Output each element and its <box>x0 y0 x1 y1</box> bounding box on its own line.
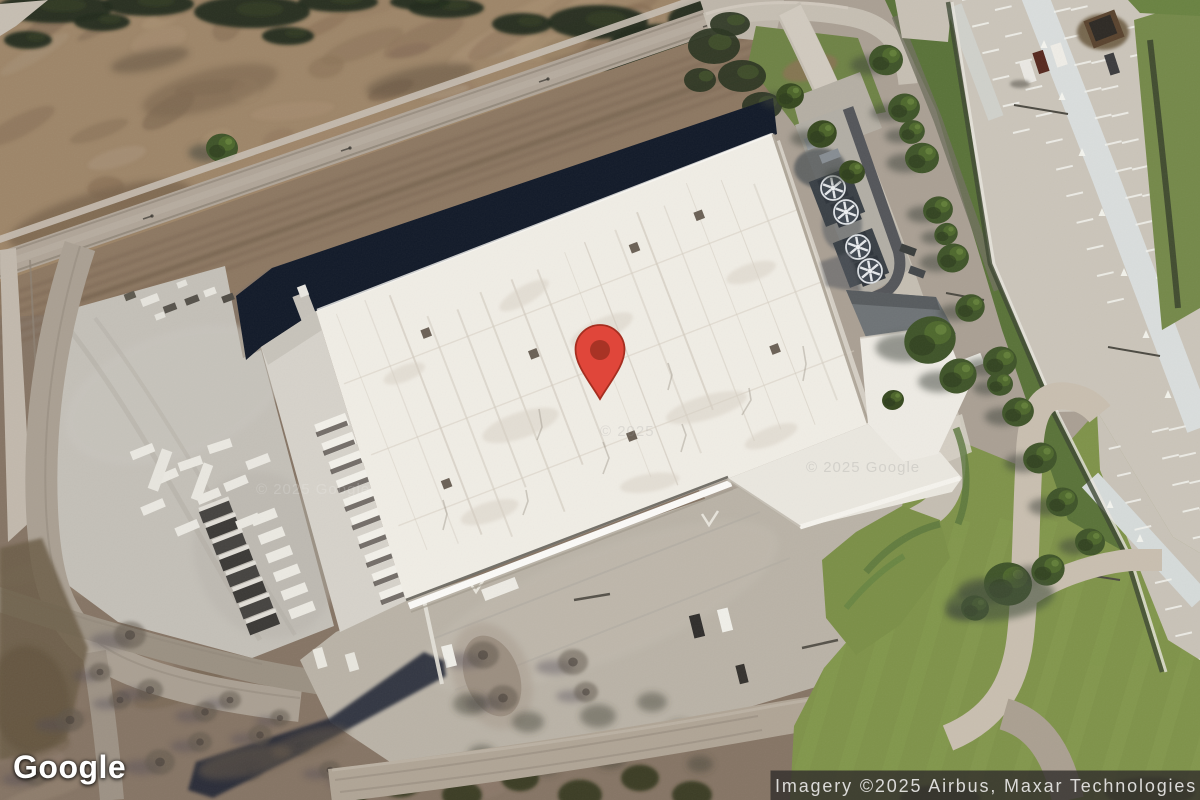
svg-text:© 2025 Google: © 2025 Google <box>806 459 920 476</box>
svg-text:© 2025 Google: © 2025 Google <box>256 481 370 498</box>
svg-text:© 2025: © 2025 <box>600 423 655 440</box>
svg-text:Imagery ©2025 Airbus, Maxar Te: Imagery ©2025 Airbus, Maxar Technologies <box>775 776 1197 796</box>
svg-text:Google: Google <box>13 749 126 785</box>
